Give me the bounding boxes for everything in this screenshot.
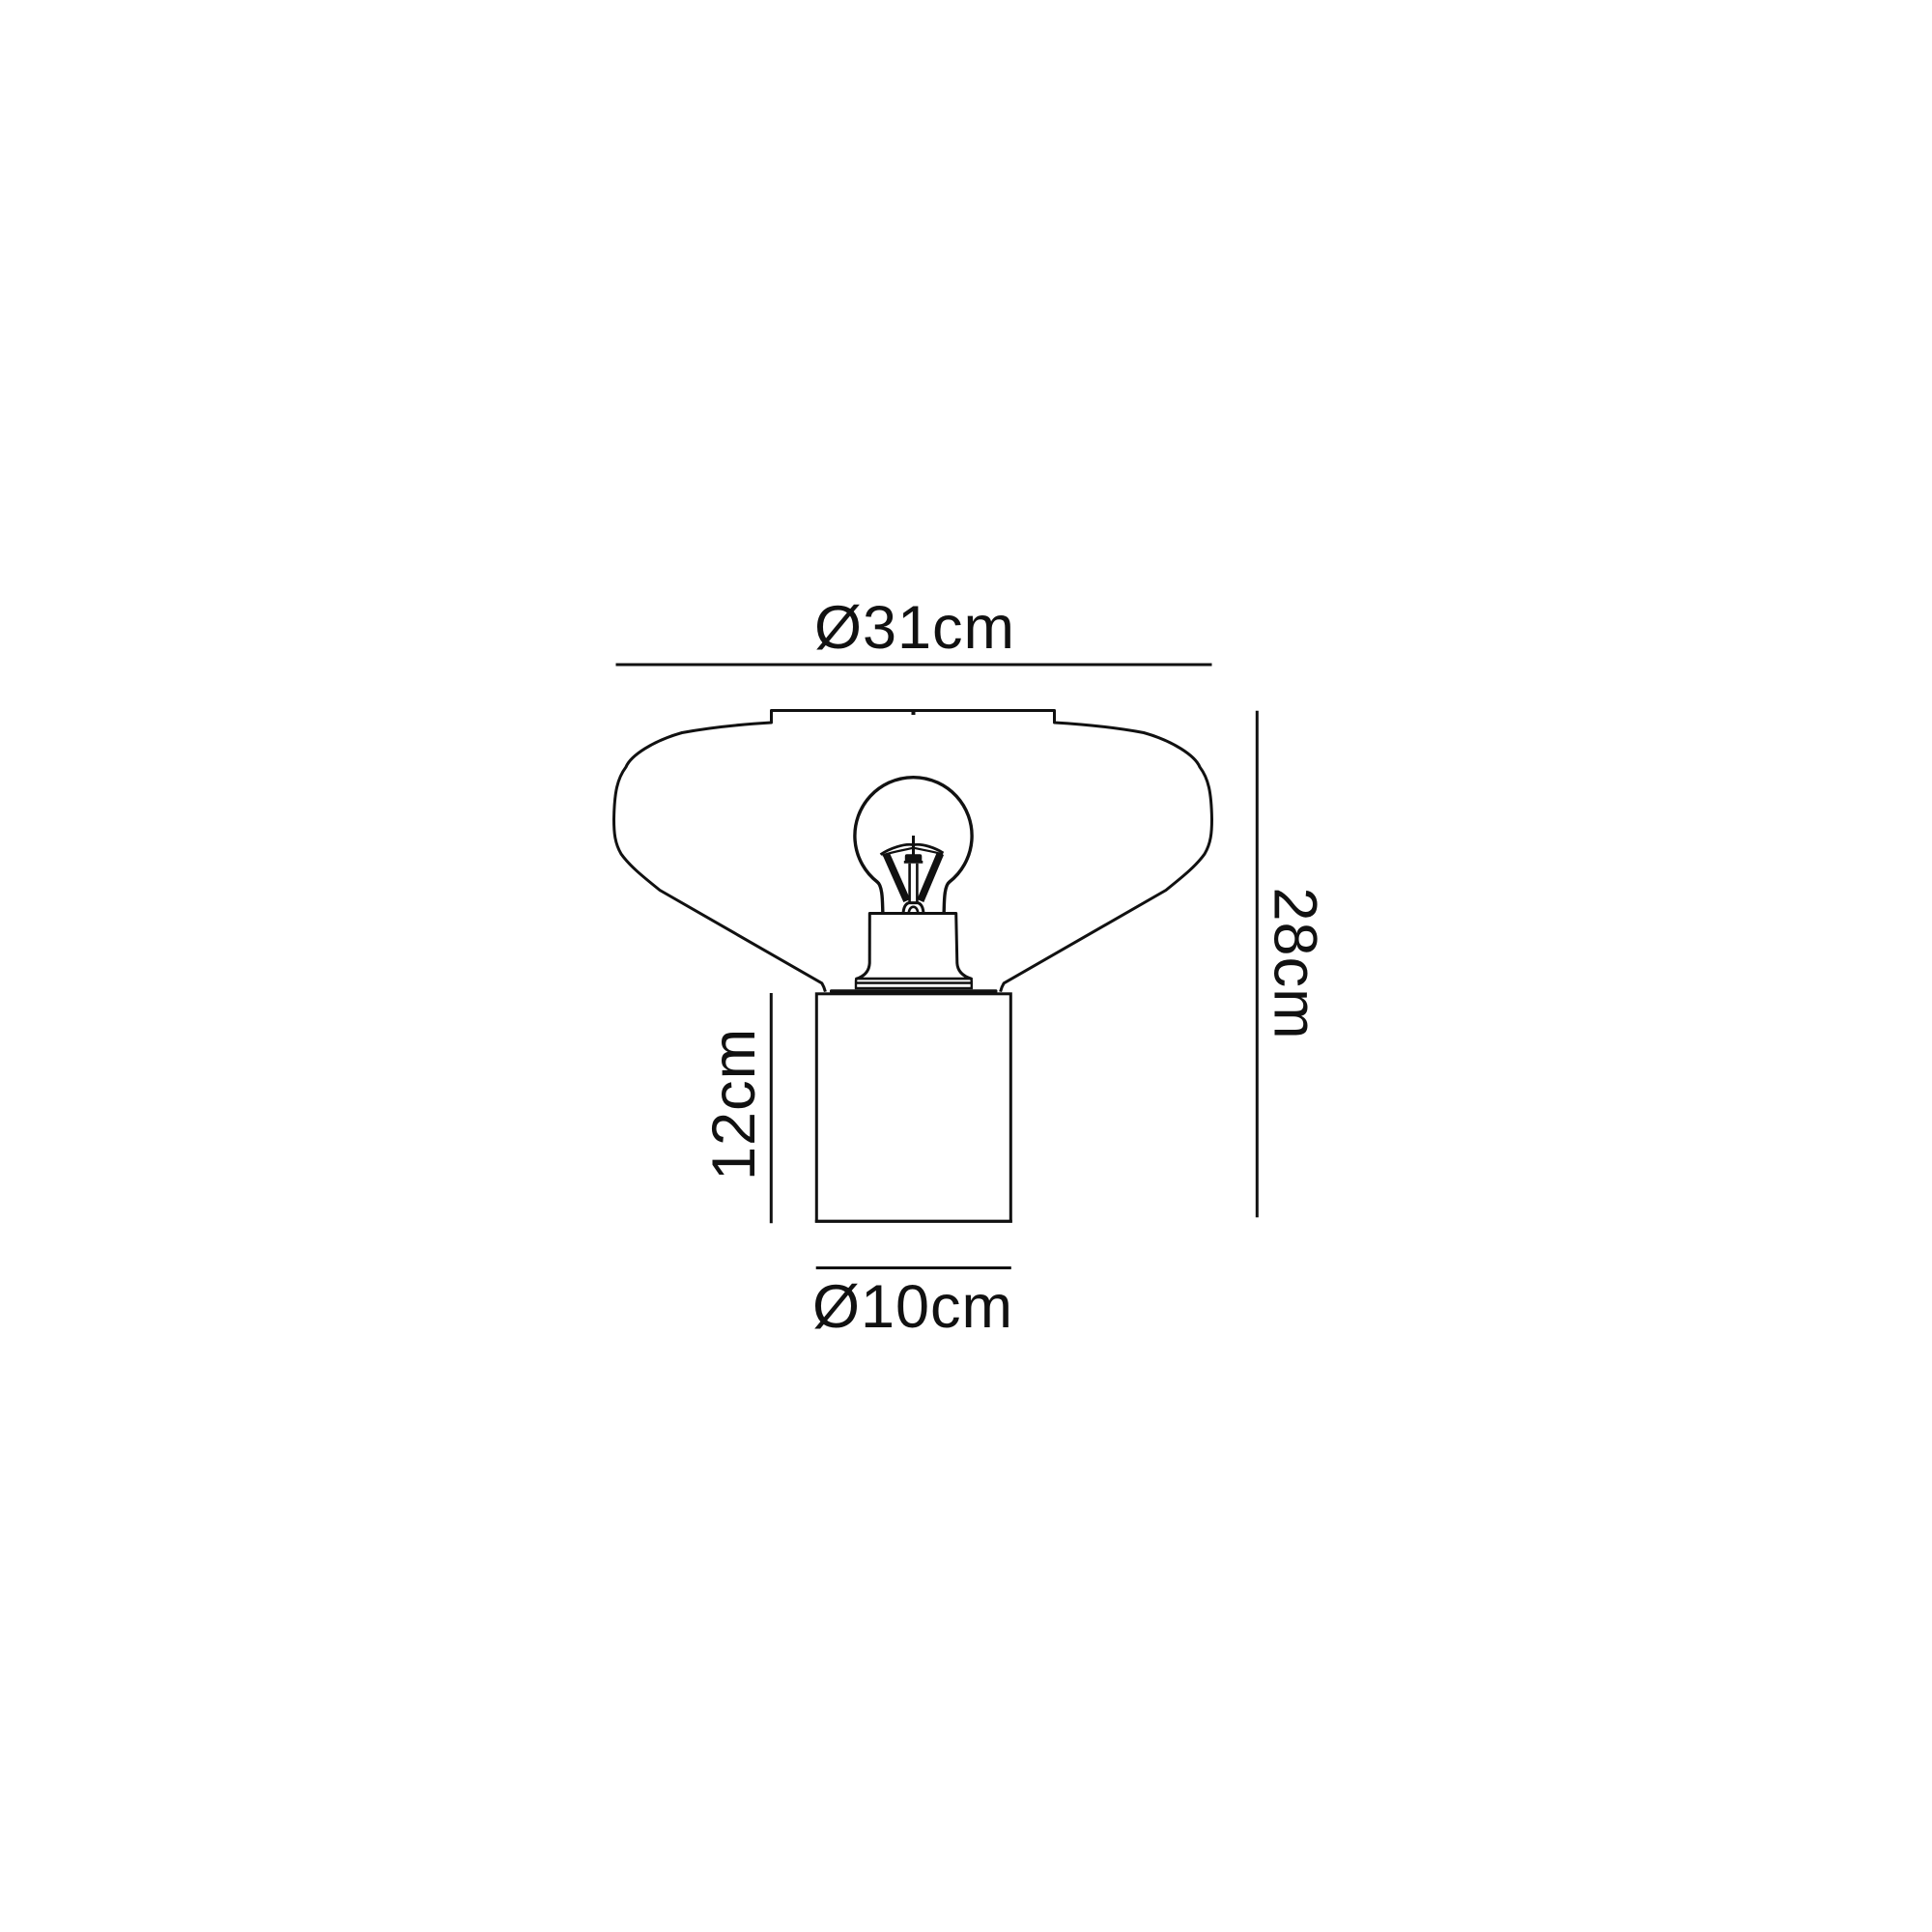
svg-text:12cm: 12cm — [700, 1028, 768, 1180]
svg-text:Ø10cm: Ø10cm — [812, 1273, 1013, 1341]
svg-text:28cm: 28cm — [1262, 888, 1329, 1040]
svg-text:Ø31cm: Ø31cm — [814, 594, 1015, 662]
